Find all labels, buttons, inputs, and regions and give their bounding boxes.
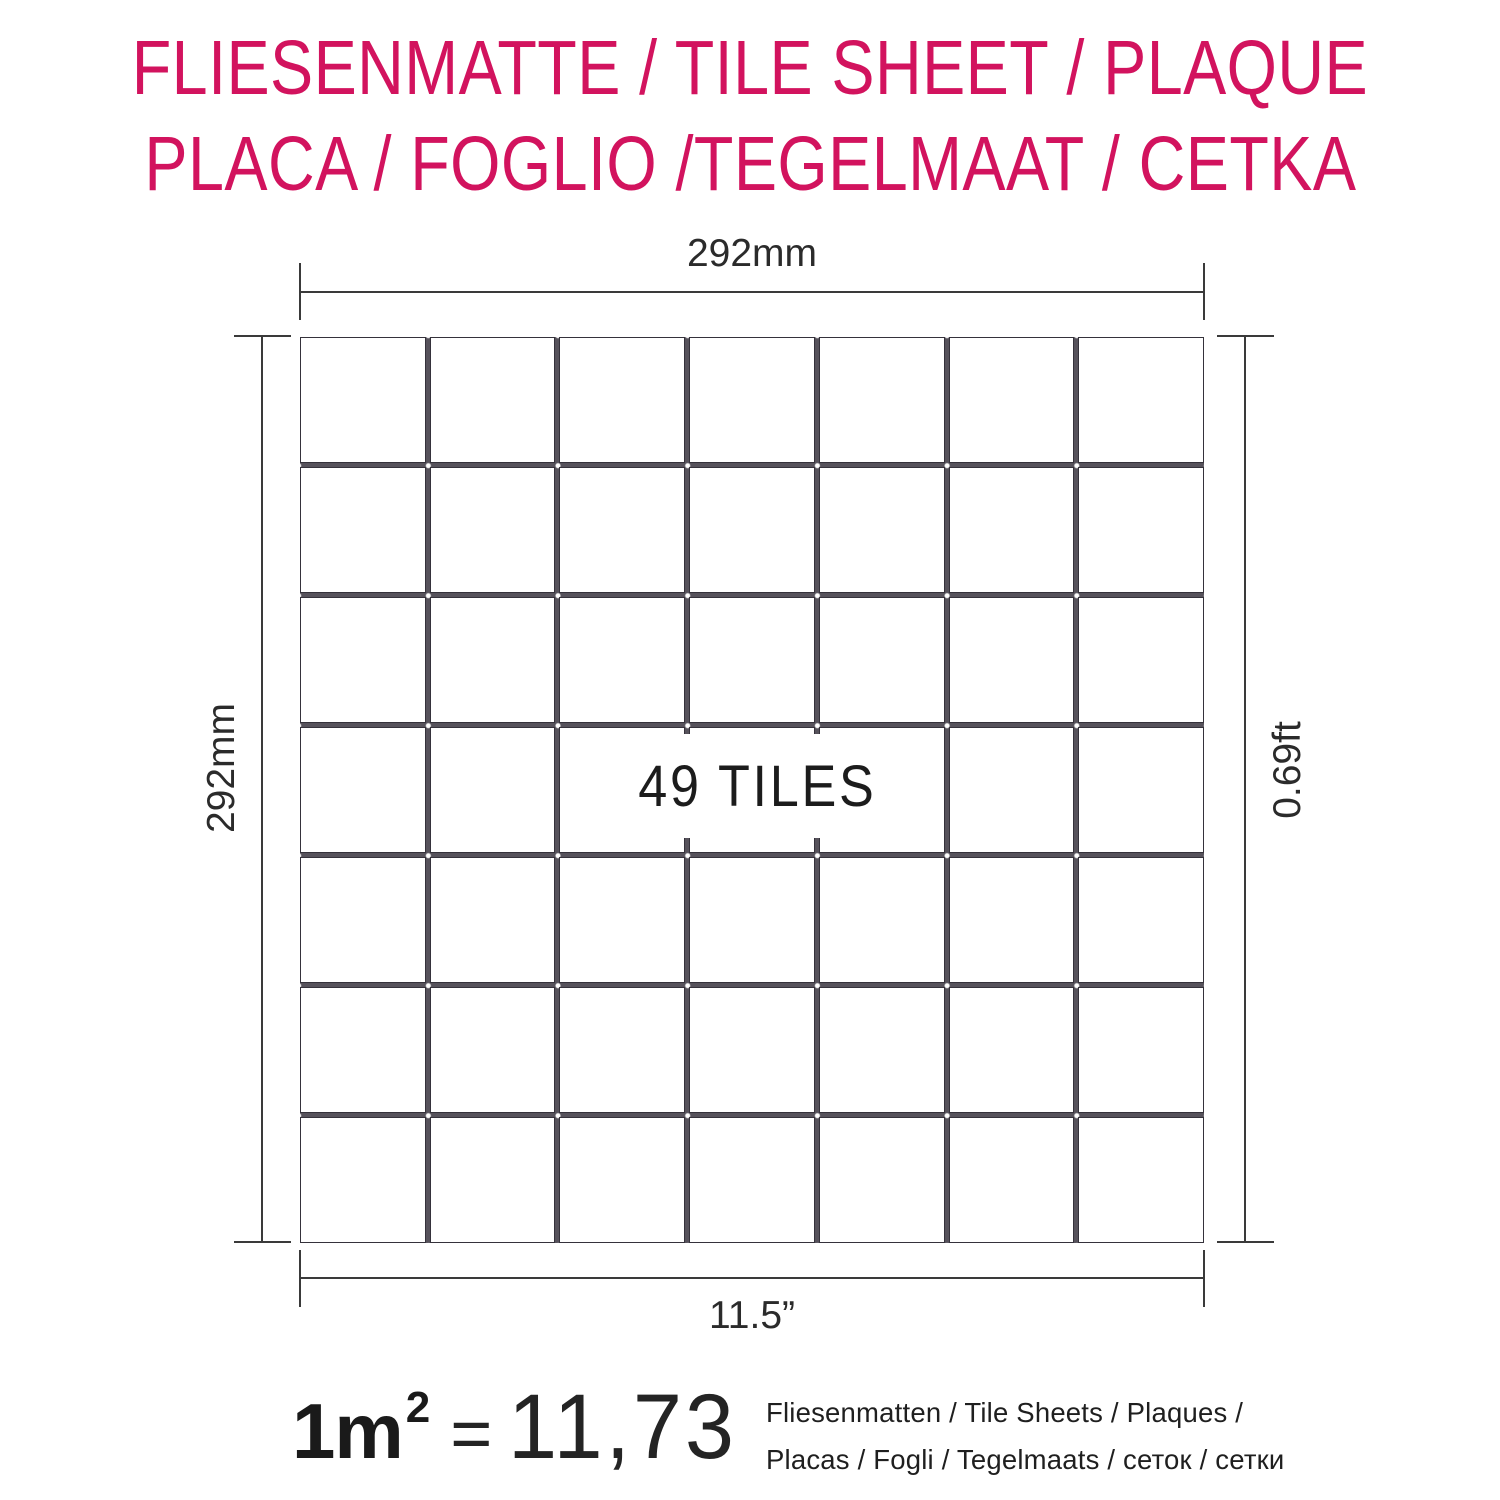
tile (949, 1117, 1075, 1243)
tile (430, 987, 556, 1113)
tile (300, 987, 426, 1113)
tile-count-mask: 49 TILES (592, 734, 922, 838)
tile (430, 467, 556, 593)
tile (819, 597, 945, 723)
tile (300, 467, 426, 593)
tile (1078, 467, 1204, 593)
formula-equals: = (450, 1393, 492, 1475)
title-line-1: FLIESENMATTE / TILE SHEET / PLAQUE (0, 30, 1500, 107)
formula-captions: Fliesenmatten / Tile Sheets / Plaques / … (766, 1389, 1284, 1483)
tile (559, 987, 685, 1113)
tile-sheet-spec-diagram: FLIESENMATTE / TILE SHEET / PLAQUE PLACA… (0, 0, 1500, 1500)
tile (300, 597, 426, 723)
tile (430, 337, 556, 463)
tile (430, 857, 556, 983)
dimension-label-right: 0.69ft (1268, 620, 1308, 920)
tile (559, 467, 685, 593)
dimension-label-left: 292mm (202, 618, 242, 918)
tile (300, 727, 426, 853)
tile (300, 337, 426, 463)
tile-count-label: 49 TILES (638, 753, 876, 820)
dimension-tick-left-top (234, 335, 291, 337)
tile (430, 727, 556, 853)
tile (949, 987, 1075, 1113)
tile (1078, 337, 1204, 463)
tile (1078, 597, 1204, 723)
tile (559, 597, 685, 723)
tile (559, 337, 685, 463)
dimension-tick-right-bottom (1217, 1241, 1274, 1243)
tile (1078, 857, 1204, 983)
dimension-label-bottom: 11.5” (300, 1296, 1204, 1336)
tile (689, 1117, 815, 1243)
tile (689, 987, 815, 1113)
dimension-line-right (1244, 336, 1246, 1243)
tile (819, 987, 945, 1113)
tile (689, 467, 815, 593)
title-line-2: PLACA / FOGLIO /TEGELMAAT / CETKA (0, 126, 1500, 203)
formula-exponent: 2 (406, 1383, 430, 1433)
formula-caption-line-2: Placas / Fogli / Tegelmaats / сеток / се… (766, 1436, 1284, 1483)
tile (819, 857, 945, 983)
formula-value: 11,73 (508, 1375, 737, 1480)
formula-area: 1m (292, 1386, 403, 1477)
tile (300, 857, 426, 983)
tile (949, 727, 1075, 853)
dimension-line-left (261, 336, 263, 1243)
title-line-2-text: PLACA / FOGLIO /TEGELMAAT / CETKA (144, 126, 1356, 203)
tile (430, 1117, 556, 1243)
tile (1078, 987, 1204, 1113)
tile (819, 337, 945, 463)
dimension-label-top: 292mm (300, 234, 1204, 274)
tile (559, 857, 685, 983)
tile (559, 1117, 685, 1243)
coverage-formula: 1m 2 = 11,73 (292, 1375, 747, 1480)
tile (949, 597, 1075, 723)
tile (819, 467, 945, 593)
dimension-tick-left-bottom (234, 1241, 291, 1243)
dimension-tick-right-top (1217, 335, 1274, 337)
tile (689, 597, 815, 723)
tile (300, 1117, 426, 1243)
tile (430, 597, 556, 723)
title-line-1-text: FLIESENMATTE / TILE SHEET / PLAQUE (132, 30, 1368, 107)
dimension-tick-top-left (299, 263, 301, 320)
tile (1078, 727, 1204, 853)
tile (949, 857, 1075, 983)
tile (949, 467, 1075, 593)
tile (689, 337, 815, 463)
tile (1078, 1117, 1204, 1243)
dimension-line-top (300, 291, 1204, 293)
tile (689, 857, 815, 983)
dimension-tick-top-right (1203, 263, 1205, 320)
tile (819, 1117, 945, 1243)
formula-caption-line-1: Fliesenmatten / Tile Sheets / Plaques / (766, 1389, 1284, 1436)
dimension-line-bottom (300, 1277, 1204, 1279)
tile (949, 337, 1075, 463)
